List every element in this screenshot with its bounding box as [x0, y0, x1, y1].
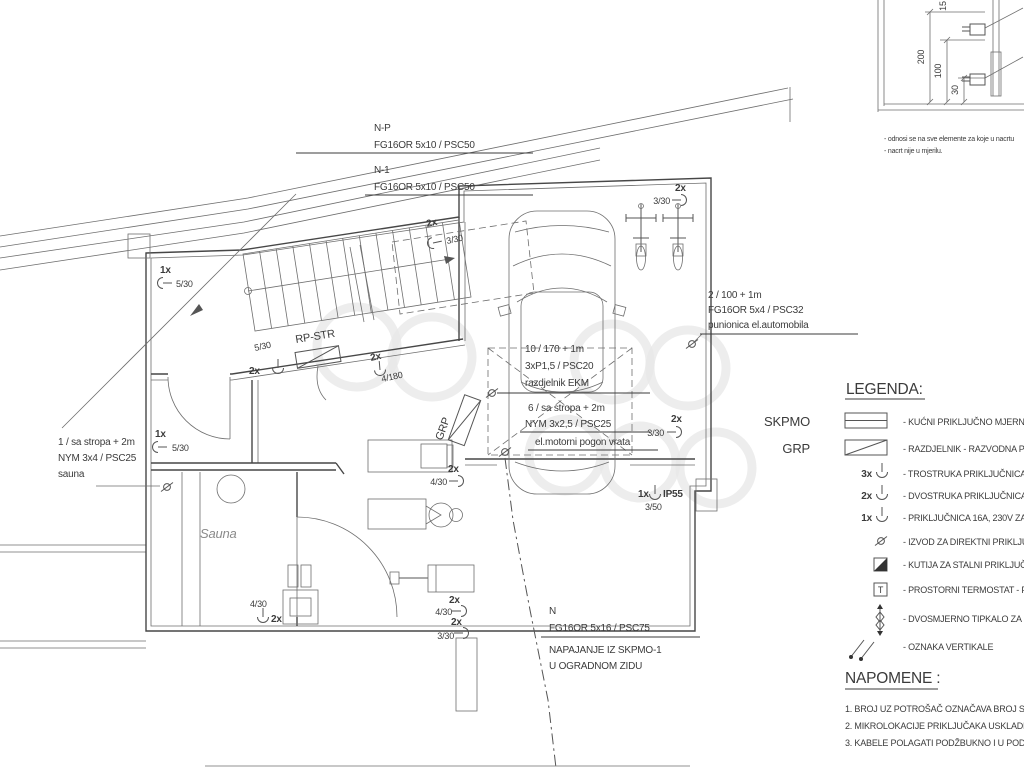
legend-skpmo-label: SKPMO [764, 414, 810, 429]
charger-feed-1: 2 / 100 + 1m [708, 290, 761, 301]
outlet-sauna [161, 483, 173, 492]
sauna-feed-2: NYM 3x4 / PSC25 [58, 453, 137, 464]
direct-outlet-symbol [875, 537, 887, 546]
svg-text:2x: 2x [369, 351, 382, 364]
equipment-rack [283, 565, 318, 624]
svg-text:3/30: 3/30 [653, 196, 670, 206]
legend-item-desc: - OZNAKA VERTIKALE [903, 642, 993, 652]
weight-bench [390, 565, 474, 592]
svg-text:4/30: 4/30 [435, 607, 452, 617]
gym-equipment [283, 440, 474, 624]
svg-text:5/30: 5/30 [176, 279, 193, 289]
svg-text:IP55: IP55 [663, 489, 683, 500]
socket-stairs-2x: 2x 3/30 [425, 217, 464, 250]
legend-item-desc: - IZVOD ZA DIREKTNI PRIKLJU [903, 537, 1024, 547]
vertical-mark-symbol [849, 640, 874, 661]
sauna-feed-1: 1 / sa stropa + 2m [58, 437, 135, 448]
detail-dim-30: 30 [950, 85, 960, 95]
floor-plan-sheet: Sauna [0, 0, 1024, 768]
svg-text:2x: 2x [675, 183, 686, 194]
double-socket-symbol [877, 485, 888, 500]
feeder-n-src1: NAPAJANJE IZ SKPMO-1 [549, 645, 662, 656]
triple-socket-symbol [877, 463, 888, 478]
stair-headroom-dashed [392, 221, 534, 314]
interior-walls [151, 217, 695, 465]
napomene: NAPOMENE : 1. BROJ UZ POTROŠAČ OZNAČAVA … [845, 670, 1024, 748]
svg-text:2x: 2x [449, 595, 460, 606]
ekm-feed-3: razdjelnik EKM [525, 378, 589, 389]
door-feed-2: NYM 3x2,5 / PSC25 [525, 419, 612, 430]
legend-item-desc: - KUĆNI PRIKLJUČNO MJERNI [903, 417, 1024, 427]
bicycle-2 [663, 204, 693, 271]
svg-text:2x: 2x [271, 614, 282, 625]
outlet-ev-charger [686, 340, 698, 349]
legend-item-desc: - DVOSMJERNO TIPKALO ZA [903, 614, 1022, 624]
legend: LEGENDA: SKPMO - KUĆNI PRIKLJUČNO MJERNI… [764, 381, 1024, 661]
door-feed-1: 6 / sa stropa + 2m [528, 403, 605, 414]
legend-item-desc: - TROSTRUKA PRIKLJUČNICA [903, 469, 1024, 479]
feeder-n1-name: N-1 [374, 165, 390, 176]
legend-grp-label: GRP [782, 441, 810, 456]
svg-text:3/50: 3/50 [645, 502, 662, 512]
treadmill [368, 440, 453, 472]
ekm-feed-1: 10 / 170 + 1m [525, 344, 584, 355]
svg-text:2x: 2x [671, 414, 682, 425]
sauna-room: Sauna [151, 463, 397, 626]
columns [128, 234, 717, 711]
bicycle-1 [626, 204, 656, 271]
socket-gym-left-2x: 4/30 2x [250, 599, 282, 625]
corner-detail: 200 100 30 15 - odnosi se na sve element… [878, 0, 1024, 155]
plan-canvas: Sauna [0, 0, 1024, 768]
svg-text:3/30: 3/30 [437, 631, 454, 641]
legend-mult-1x: 1x [861, 513, 872, 524]
svg-text:2x: 2x [448, 464, 459, 475]
thermostat-letter: T [878, 585, 884, 595]
plan-sockets: 1x 5/30 2x 3/30 2x 3/30 2x 3/30 5/30 2x … [153, 183, 687, 641]
feeder-n-name: N [549, 606, 556, 617]
legend-item-desc: - PRIKLJUČNICA 16A, 230V ZA [903, 513, 1024, 523]
svg-text:5/30: 5/30 [253, 340, 272, 353]
svg-text:2x: 2x [249, 366, 260, 377]
legend-title: LEGENDA: [846, 381, 923, 398]
legend-item-desc: - DVOSTRUKA PRIKLJUČNICA [903, 491, 1024, 501]
feeder-n-cable: FG16OR 5x16 / PSC75 [549, 623, 650, 634]
napomene-note-1: 1. BROJ UZ POTROŠAČ OZNAČAVA BROJ STR [845, 704, 1024, 714]
svg-text:4/30: 4/30 [430, 477, 447, 487]
svg-text:4/30: 4/30 [250, 599, 267, 609]
grp-board-symbol [448, 395, 480, 446]
annotations: N-P FG16OR 5x10 / PSC50 N-1 FG16OR 5x10 … [58, 123, 858, 672]
charger-feed-2: FG16OR 5x4 / PSC32 [708, 305, 804, 316]
napomene-title: NAPOMENE : [845, 670, 940, 687]
legend-item-desc: - PROSTORNI TERMOSTAT - P [903, 585, 1024, 595]
legend-mult-2x: 2x [861, 491, 872, 502]
socket-bottom-wall-2x: 2x 3/30 [437, 617, 468, 641]
detail-note-1: - odnosi se na sve elemente za koje u na… [884, 136, 1014, 143]
detail-dim-100: 100 [933, 64, 943, 79]
svg-text:2x: 2x [451, 617, 462, 628]
svg-text:1x: 1x [160, 265, 171, 276]
socket-gym-right-2x: 2x 4/30 [435, 595, 466, 617]
socket-above-sauna-1x: 1x 5/30 [153, 429, 189, 453]
svg-text:5/30: 5/30 [172, 443, 189, 453]
svg-text:3/30: 3/30 [647, 428, 664, 438]
legend-item-desc: - RAZDJELNIK - RAZVODNA P [903, 444, 1024, 454]
detail-dim-15: 15 [938, 1, 948, 11]
napomene-note-2: 2. MIKROLOKACIJE PRIKLJUČAKA USKLADITI [845, 721, 1024, 731]
detail-socket-box-2 [970, 74, 985, 85]
detail-dim-200: 200 [916, 50, 926, 65]
detail-note-2: - nacrt nije u mjerilu. [884, 148, 943, 155]
staircase [243, 220, 534, 331]
napomene-note-3: 3. KABELE POLAGATI PODŽBUKNO I U PODU [845, 738, 1024, 748]
feeder-np-name: N-P [374, 123, 391, 134]
sauna-heater [217, 475, 245, 503]
ekm-feed-2: 3xP1,5 / PSC20 [525, 361, 594, 372]
svg-text:2x: 2x [425, 217, 438, 230]
feeder-n1-cable: FG16OR 5x10 / PSC50 [374, 182, 475, 193]
socket-rp-str-2x: 5/30 2x [249, 340, 284, 377]
socket-bikes-2x: 2x 3/30 [653, 183, 686, 206]
exercise-bike [368, 499, 463, 529]
svg-text:3/30: 3/30 [445, 233, 464, 246]
charger-feed-3: punionica el.automobila [708, 320, 809, 331]
single-socket-symbol [877, 507, 888, 522]
two-way-button-symbol [876, 604, 884, 636]
sauna-feed-3: sauna [58, 469, 85, 480]
svg-text:1x: 1x [155, 429, 166, 440]
door-feed-3: el.motorni pogon vrata [535, 437, 631, 448]
svg-text:1x: 1x [638, 489, 649, 500]
detail-socket-box-1 [970, 24, 985, 35]
legend-item-desc: - KUTIJA ZA STALNI PRIKLJUČ [903, 560, 1024, 570]
sauna-room-label: Sauna [200, 526, 237, 541]
socket-entry-1x: 1x 5/30 [158, 265, 193, 289]
feeder-n-src2: U OGRADNOM ZIDU [549, 661, 642, 672]
feeder-np-cable: FG16OR 5x10 / PSC50 [374, 140, 475, 151]
legend-mult-3x: 3x [861, 469, 872, 480]
sauna-door-arc [297, 517, 397, 617]
